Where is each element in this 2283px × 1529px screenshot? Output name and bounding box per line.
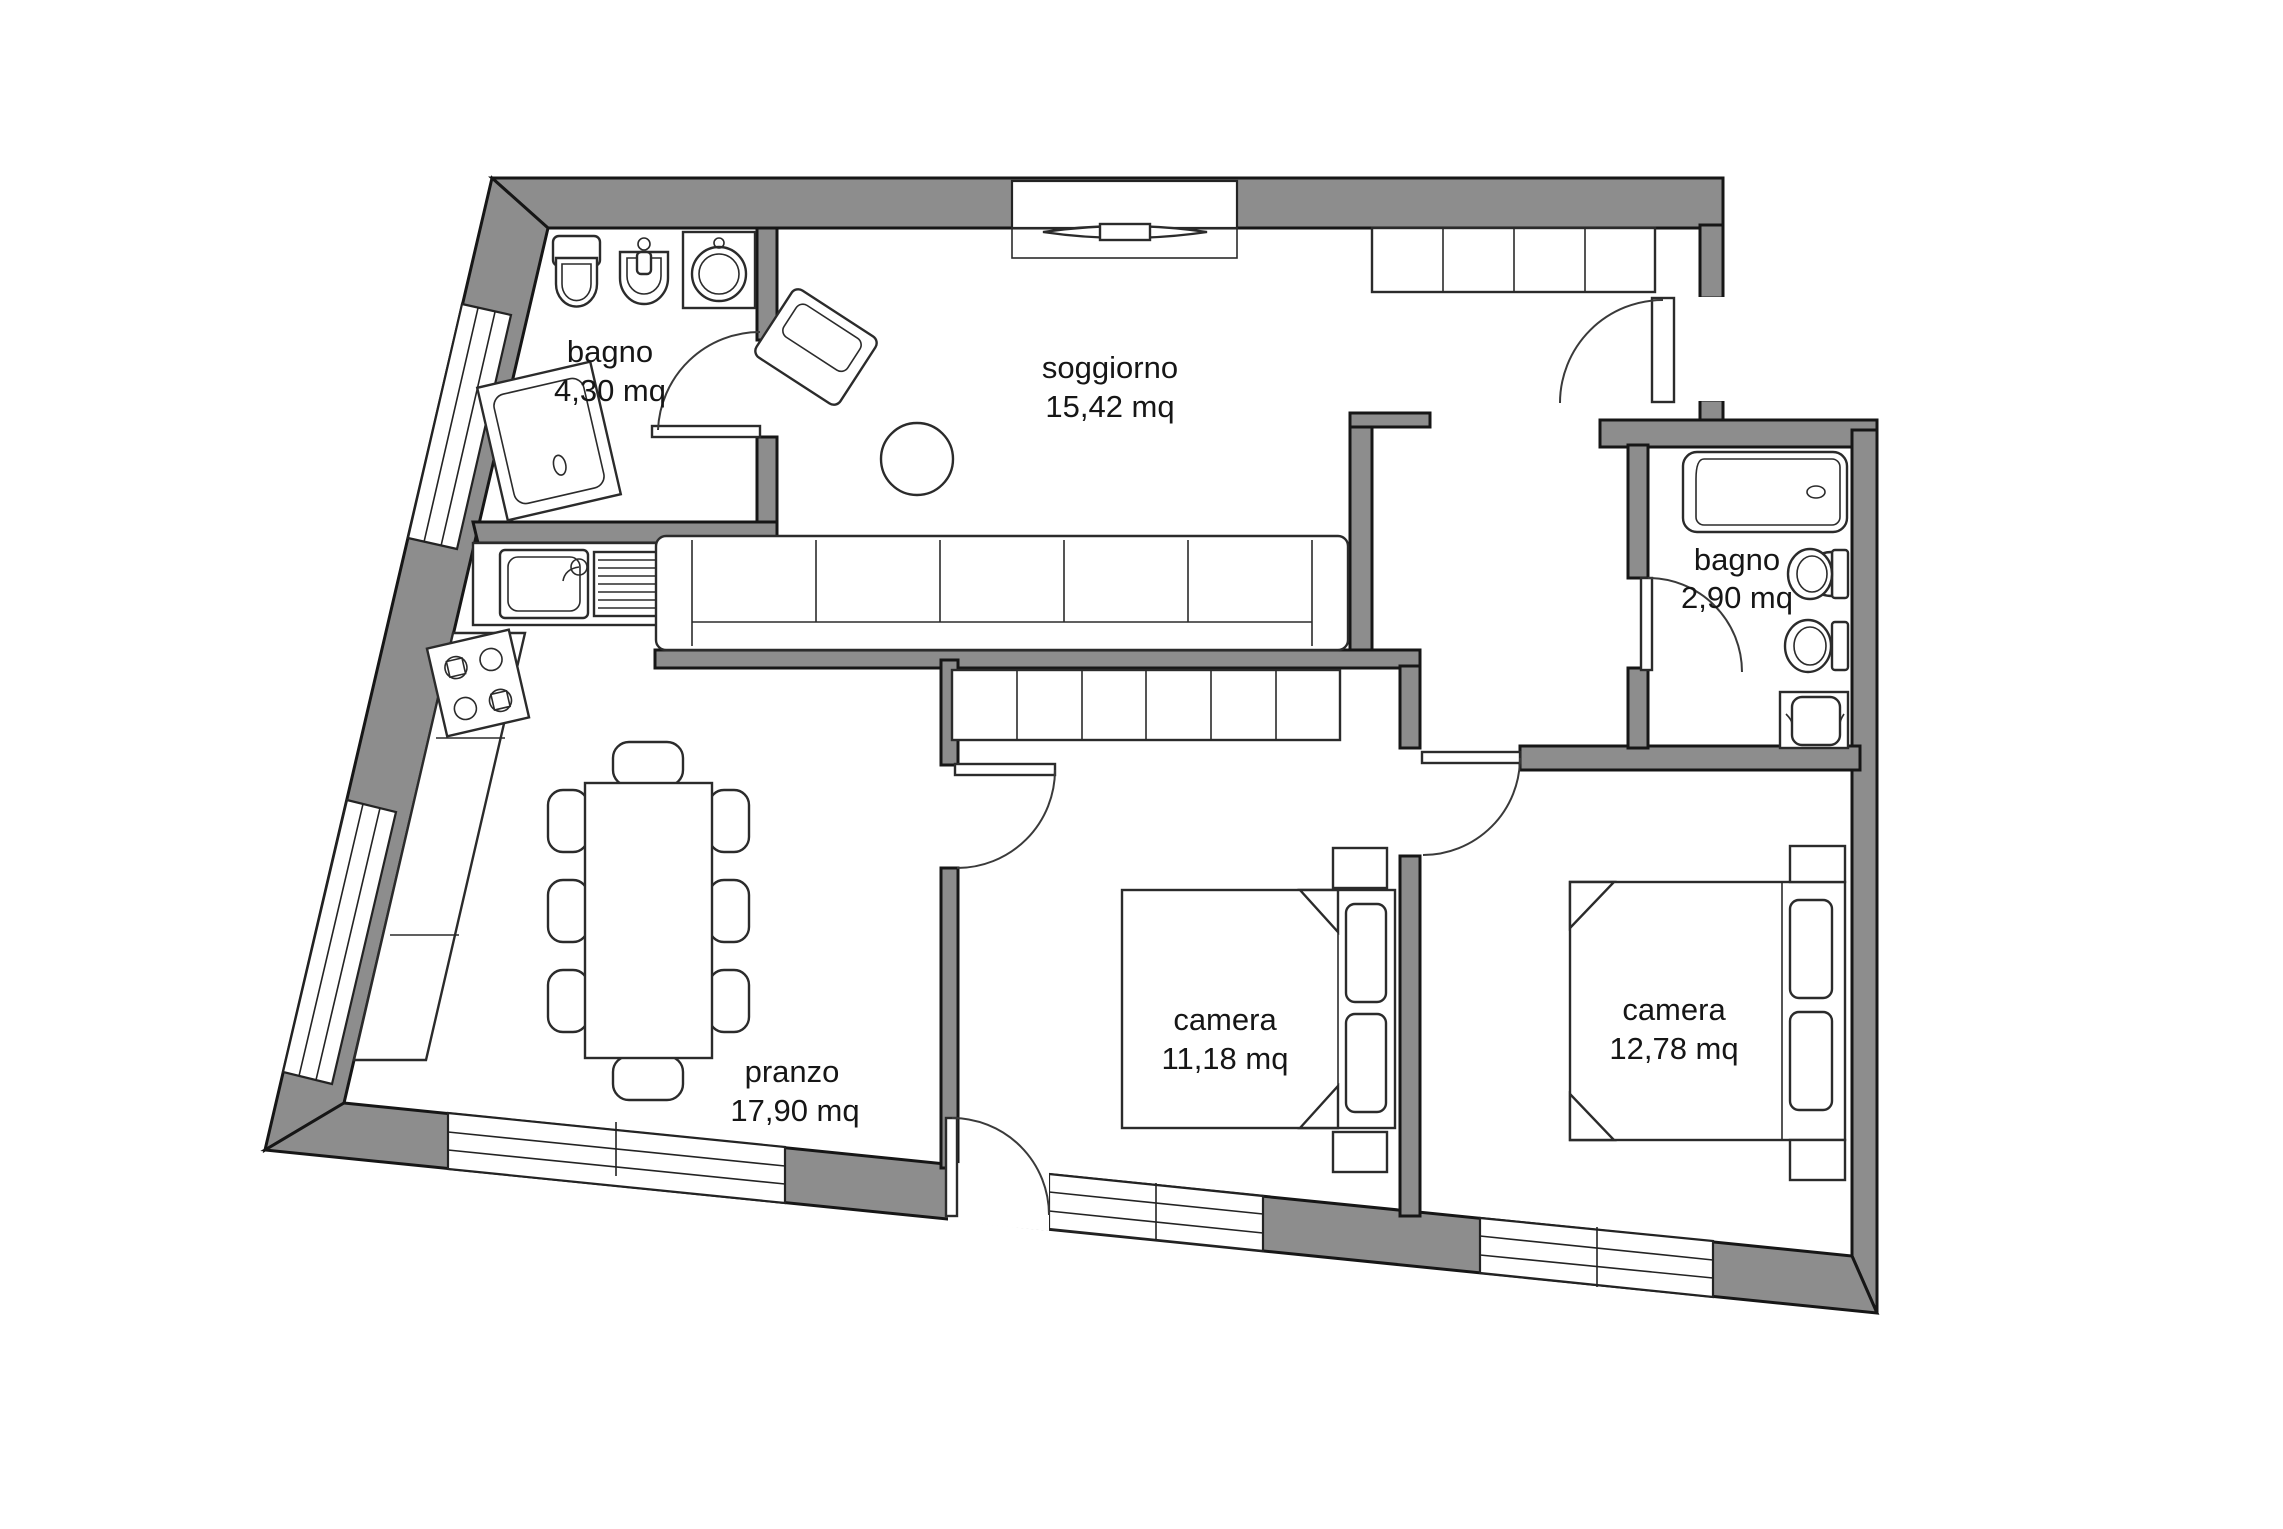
pillow: [1346, 1014, 1386, 1112]
sofa-icon: [656, 536, 1348, 650]
wall-soggiorno-right-stub: [1350, 413, 1430, 427]
bagno1-door: [652, 332, 760, 437]
nightstand: [1790, 1140, 1845, 1180]
wall-soggiorno-right: [1350, 413, 1372, 652]
soggiorno-furniture: [656, 228, 1655, 650]
label-bagno1-area: 4,30 mq: [554, 373, 666, 408]
label-soggiorno-area: 15,42 mq: [1045, 389, 1174, 424]
label-pranzo-area: 17,90 mq: [730, 1093, 859, 1128]
round-table-icon: [881, 423, 953, 495]
toilet-icon: [553, 236, 600, 307]
label-pranzo-name: pranzo: [745, 1054, 840, 1089]
label-camera1-name: camera: [1173, 1002, 1277, 1037]
bidet-icon: [1785, 620, 1848, 672]
label-camera1-area: 11,18 mq: [1162, 1041, 1289, 1076]
pillow: [1346, 904, 1386, 1002]
wardrobe-corridor-icon: [952, 670, 1340, 740]
window-bottom-2: [1049, 1174, 1263, 1251]
nightstand: [1333, 1132, 1387, 1172]
floor-plan-drawing: bagno 4,30 mq soggiorno 15,42 mq bagno 2…: [0, 0, 2283, 1529]
kitchen-sink-icon: [500, 550, 588, 618]
label-camera2-name: camera: [1622, 992, 1726, 1027]
wall-corridor-left-upper: [1400, 666, 1420, 748]
label-bagno2-name: bagno: [1694, 542, 1780, 577]
label-soggiorno-name: soggiorno: [1042, 350, 1178, 385]
nightstand: [1790, 846, 1845, 882]
pillow: [1790, 900, 1832, 998]
label-bagno1-name: bagno: [567, 334, 653, 369]
pranzo-furniture: [548, 742, 749, 1100]
camera2-door: [1422, 752, 1520, 855]
wall-bagno2-left-upper: [1628, 445, 1648, 578]
dining-table: [585, 783, 712, 1058]
wall-bagno2-top: [1600, 420, 1877, 447]
entrance-door: [1560, 297, 1725, 403]
wall-right: [1852, 430, 1877, 1313]
kitchen-drainer-icon: [594, 552, 660, 616]
bathtub-icon: [1683, 452, 1847, 532]
wall-bagno2-bottom: [1520, 746, 1860, 770]
wall-inter-camera: [1400, 856, 1420, 1216]
camera1-door: [955, 764, 1055, 868]
nightstand: [1333, 848, 1387, 888]
washbasin-icon: [683, 232, 755, 308]
washbasin-icon: [1780, 692, 1848, 748]
pillow: [1790, 1012, 1832, 1110]
label-camera2-area: 12,78 mq: [1609, 1031, 1738, 1066]
wardrobe-lobby-icon: [1372, 228, 1655, 292]
pranzo-exterior-door: [946, 1118, 1049, 1231]
window-bottom-3: [1480, 1218, 1713, 1297]
floor-plan-page: bagno 4,30 mq soggiorno 15,42 mq bagno 2…: [0, 0, 2283, 1529]
label-bagno2-area: 2,90 mq: [1681, 580, 1793, 615]
toilet-icon: [1788, 549, 1848, 599]
window-top-soggiorno: [1012, 181, 1237, 258]
wall-sofa-back: [655, 650, 1420, 668]
bidet-icon: [620, 238, 668, 304]
wall-bagno2-left-lower: [1628, 668, 1648, 748]
wall-entrance-upper-jamb: [1700, 225, 1723, 298]
